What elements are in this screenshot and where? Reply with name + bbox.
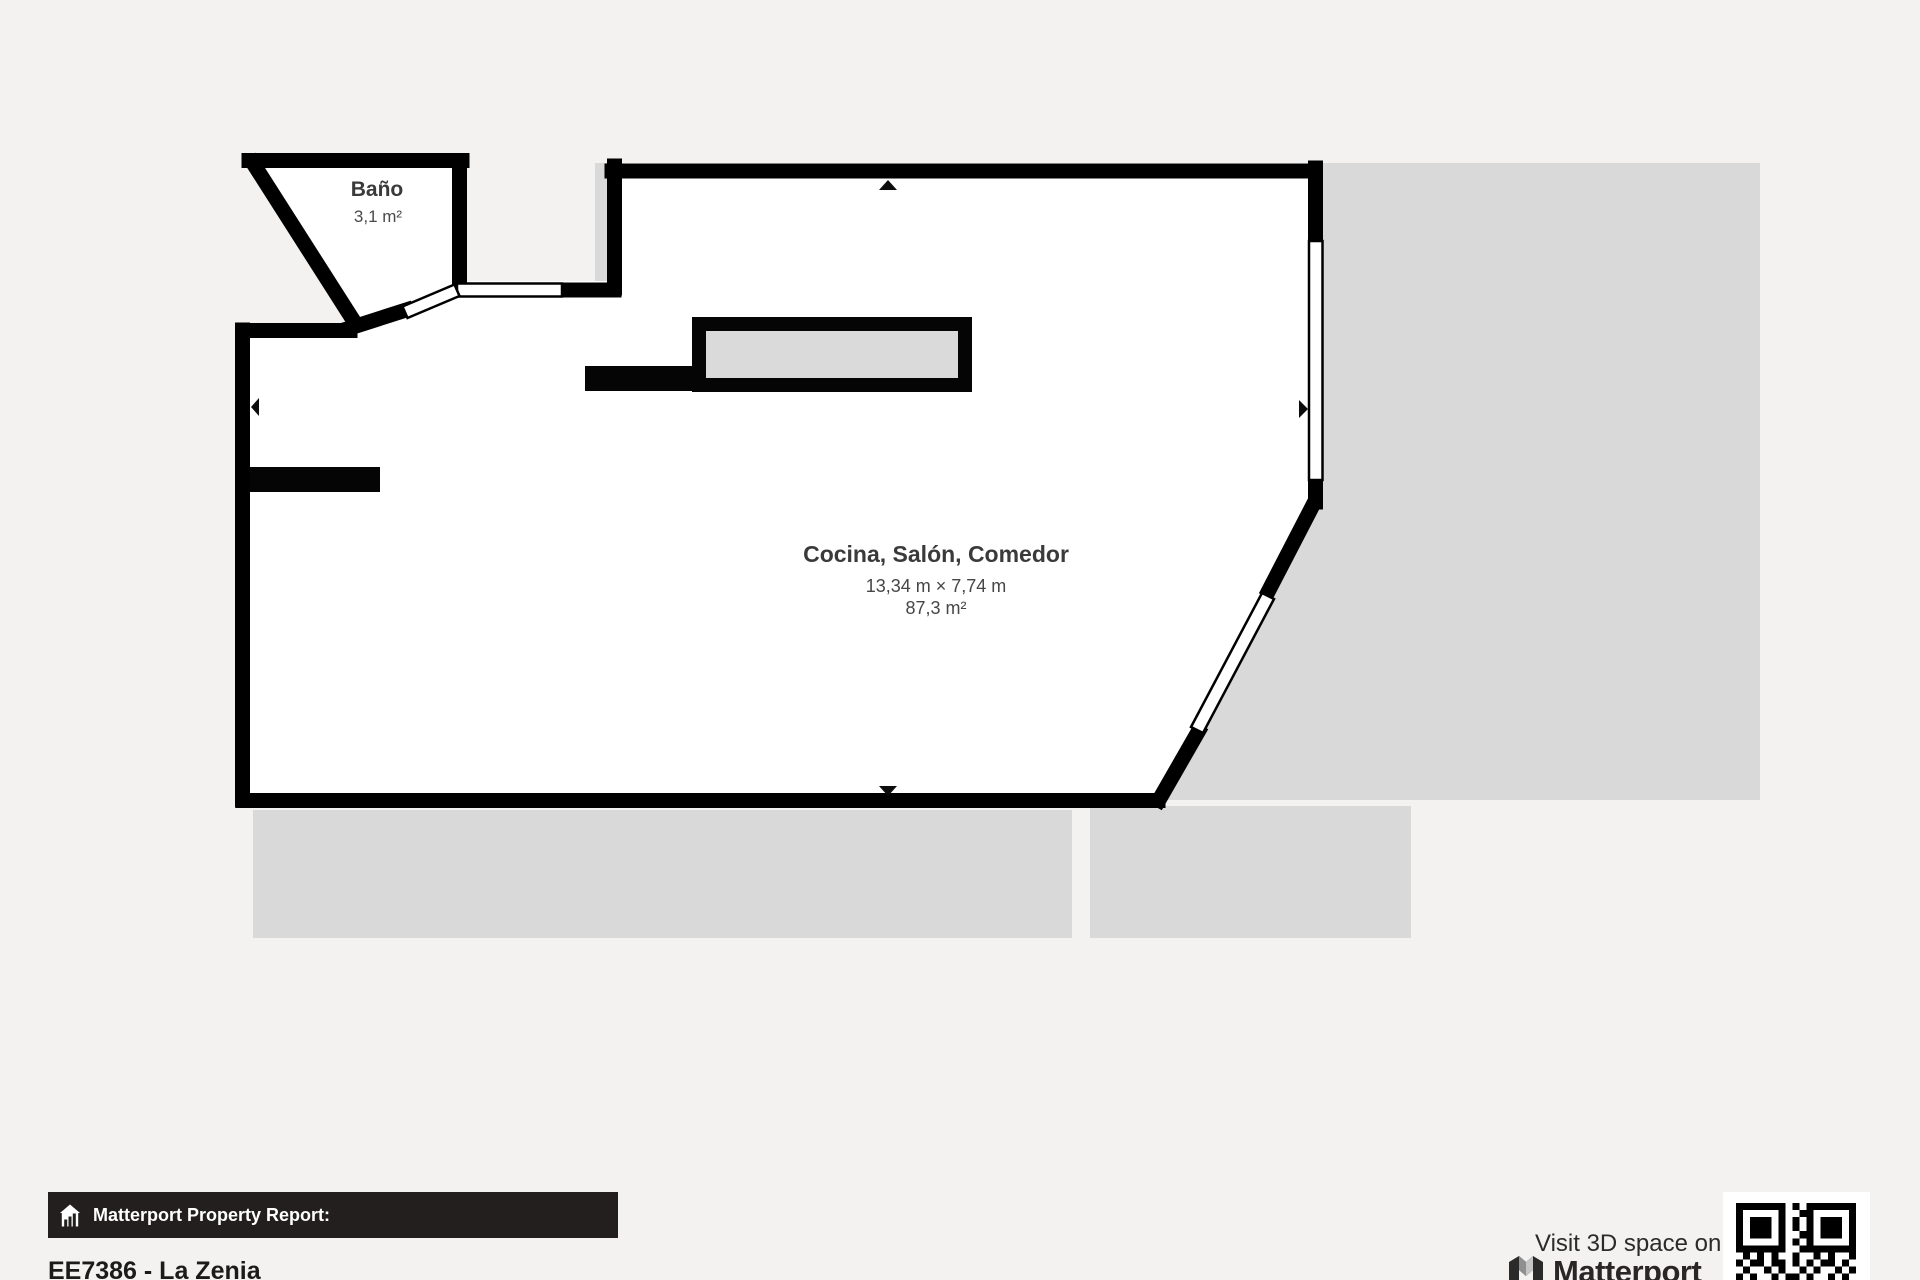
brand-row: Matterport [1508,1256,1701,1280]
island-top [706,331,958,378]
main-room-area-label: 87,3 m² [905,599,966,617]
report-bar-label: Matterport Property Report: [93,1205,330,1226]
main-room-name-label: Cocina, Salón, Comedor [803,543,1069,566]
wall-stub-left [236,467,380,492]
floorplan-drawing [0,0,1920,1280]
property-title: EE7386 - La Zenia [48,1257,261,1280]
report-bar: Matterport Property Report: [48,1192,618,1238]
window-top-left [457,284,562,297]
qr-pattern [1736,1203,1856,1280]
floorplan-page: Baño 3,1 m² Cocina, Salón, Comedor 13,34… [0,0,1920,1280]
main-room-dimensions-label: 13,34 m × 7,74 m [866,577,1007,595]
counter-stub [585,366,692,391]
house-icon [59,1203,81,1228]
brand-name: Matterport [1553,1256,1701,1280]
terrace-bottom-left [253,810,1072,938]
window-right [1309,241,1323,480]
room-interiors [236,153,1323,808]
bathroom-area-label: 3,1 m² [354,208,402,225]
qr-code [1723,1192,1870,1280]
terrace-bottom-mid [1090,806,1411,938]
bathroom-name-label: Baño [351,179,404,200]
matterport-logo [1508,1256,1544,1280]
